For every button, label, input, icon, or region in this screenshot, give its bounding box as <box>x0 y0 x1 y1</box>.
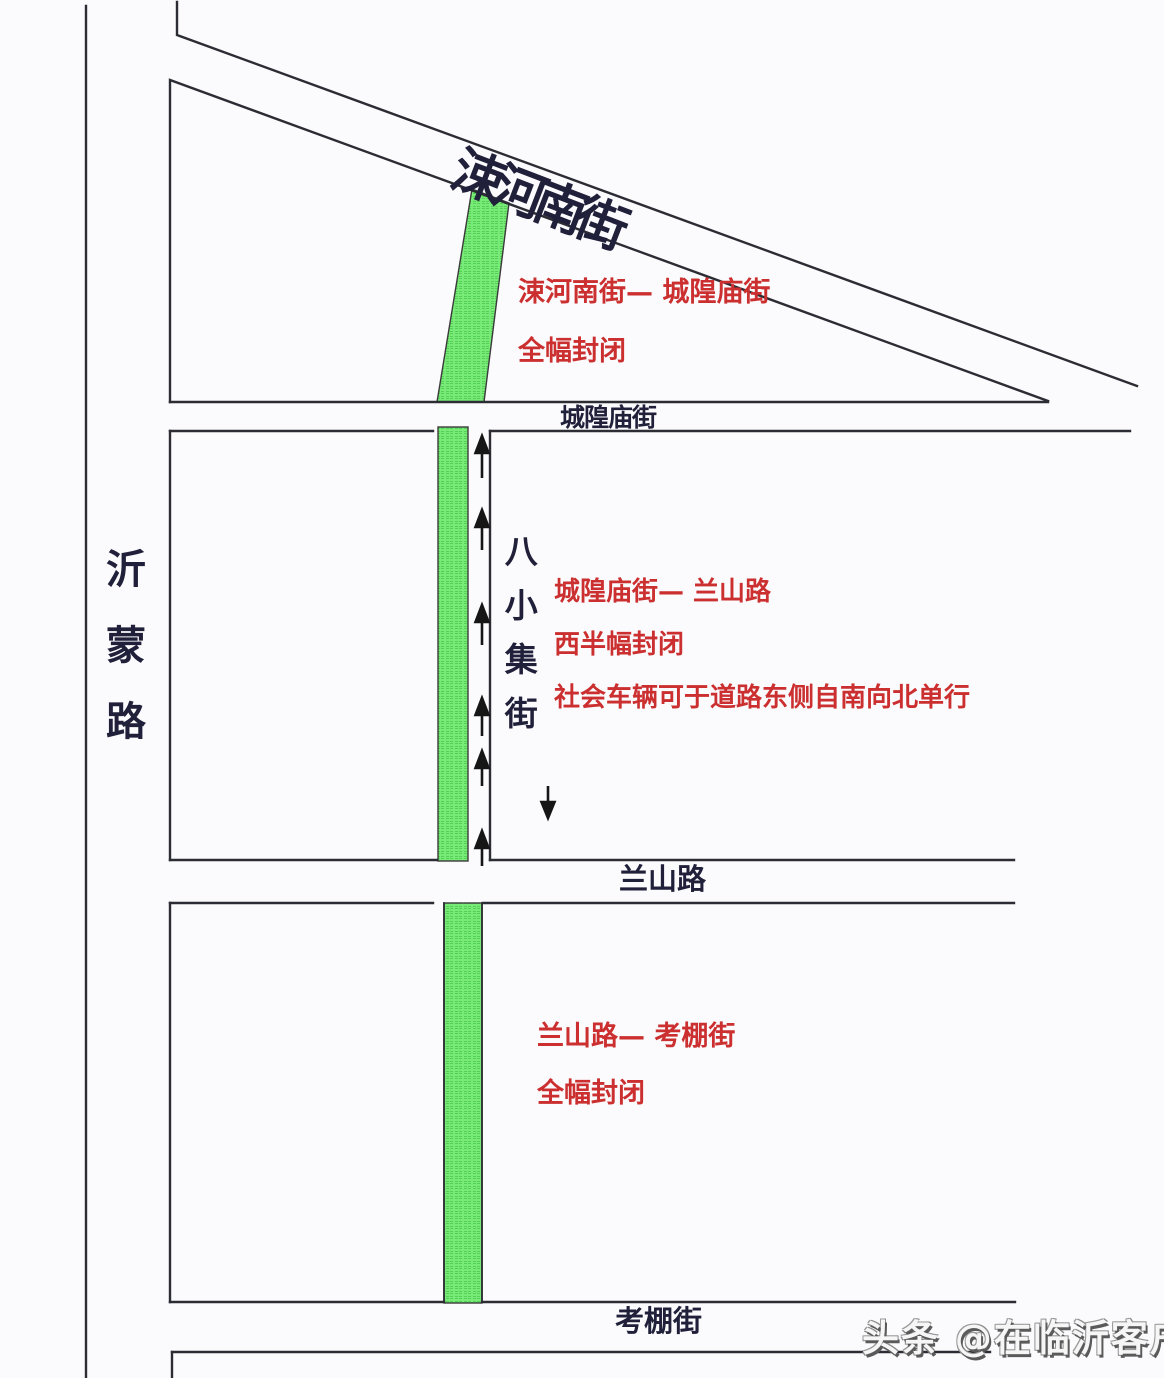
closure-note-line: 兰山路— 考棚街 <box>537 1014 735 1053</box>
closure-note-line: 全幅封闭 <box>537 1071 735 1110</box>
lanshan-road-label: 兰山路 <box>619 864 706 896</box>
north-arrow-icon <box>476 605 489 645</box>
north-arrow-icon <box>476 510 489 550</box>
baxiaoji-street-label: 八小集街 <box>500 534 536 750</box>
road-closure-map: 沂蒙路 涑河南街 城隍庙街 八小集街 兰山路 考棚街 涑河南街— 城隍庙街 全幅… <box>0 0 1164 1378</box>
north-arrow-icon <box>476 751 489 786</box>
chenghuangmiao-street-label: 城隍庙街 <box>560 404 656 432</box>
closed-segment-lanshan-to-kaopeng <box>444 903 482 1303</box>
closure-note-south: 兰山路— 考棚街 全幅封闭 <box>537 1014 735 1110</box>
closure-note-line: 社会车辆可于道路东侧自南向北单行 <box>554 677 970 714</box>
closed-segment-suhe-to-chenghuang <box>437 189 509 402</box>
toutiao-watermark: 头条 @在临沂客户端 <box>862 1308 1164 1362</box>
north-arrow-icon <box>476 831 489 866</box>
north-arrow-icon <box>476 698 489 736</box>
kaopeng-street-label: 考棚街 <box>615 1306 702 1338</box>
closure-note-line: 城隍庙街— 兰山路 <box>554 571 970 608</box>
closure-note-north: 涑河南街— 城隍庙街 全幅封闭 <box>518 270 770 368</box>
closed-segments <box>437 189 509 1303</box>
south-arrow-icon <box>542 786 555 818</box>
closure-note-line: 全幅封闭 <box>518 329 770 368</box>
closure-note-middle: 城隍庙街— 兰山路 西半幅封闭 社会车辆可于道路东侧自南向北单行 <box>554 571 970 714</box>
closure-note-line: 西半幅封闭 <box>554 624 970 661</box>
north-arrow-icon <box>476 436 489 478</box>
closed-segment-chenghuang-to-lanshan <box>438 427 468 861</box>
yimeng-road-label: 沂蒙路 <box>100 548 144 776</box>
closure-note-line: 涑河南街— 城隍庙街 <box>518 270 770 309</box>
